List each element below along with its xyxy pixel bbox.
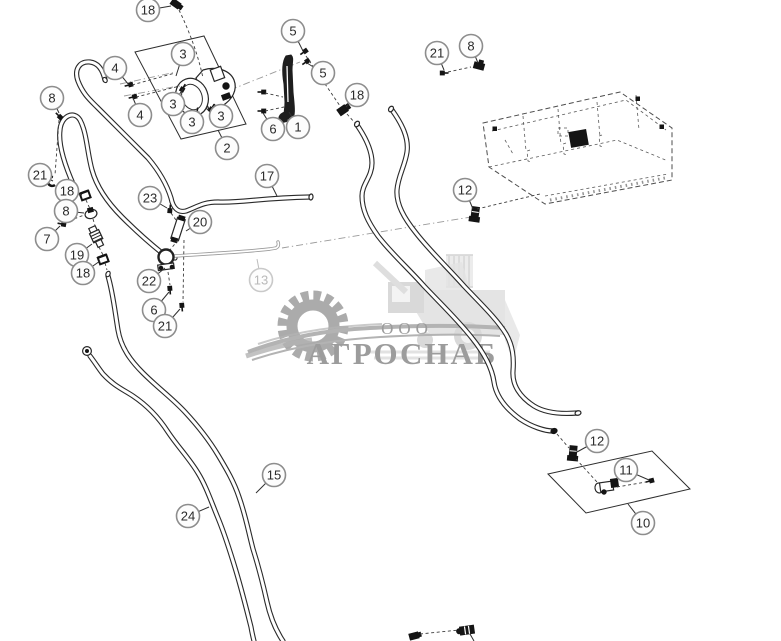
callout-2[interactable]: 2 <box>216 130 239 160</box>
svg-text:3: 3 <box>217 109 224 124</box>
svg-text:5: 5 <box>289 24 296 39</box>
frame-mounted-component <box>569 130 588 148</box>
svg-text:12: 12 <box>458 183 472 198</box>
callout-24[interactable]: 24 <box>177 505 210 528</box>
bracket-1 <box>279 55 294 123</box>
callout-23[interactable]: 23 <box>139 187 168 210</box>
callout-11[interactable]: 11 <box>615 459 650 482</box>
callout-8[interactable]: 8 <box>460 35 483 64</box>
callout-10[interactable]: 10 <box>628 504 655 535</box>
svg-text:20: 20 <box>193 215 207 230</box>
svg-text:4: 4 <box>111 61 118 76</box>
chassis-frame-phantom <box>483 92 672 204</box>
parts-diagram-page: ООО АГРОСНАБ <box>0 0 781 641</box>
fitting-bottom-left <box>409 631 422 640</box>
svg-text:2: 2 <box>223 141 230 156</box>
callout-4[interactable]: 4 <box>129 98 152 127</box>
hose-15 <box>105 271 283 641</box>
svg-text:8: 8 <box>62 204 69 219</box>
clamp-18-a <box>80 191 91 201</box>
callout-20[interactable]: 20 <box>186 211 212 234</box>
callout-18[interactable]: 18 <box>72 261 101 285</box>
callout-18[interactable]: 18 <box>137 0 172 22</box>
fitting-8-left <box>84 207 98 220</box>
clamp-18-b <box>98 255 109 265</box>
callout-13[interactable]: 13 <box>250 259 273 292</box>
bolt-5a <box>299 48 309 57</box>
fitting-8-topright <box>473 59 485 70</box>
assembly-axis-lines <box>120 62 471 248</box>
svg-text:7: 7 <box>43 232 50 247</box>
svg-text:11: 11 <box>619 463 633 478</box>
bolt-6b <box>258 109 267 114</box>
svg-text:18: 18 <box>76 266 90 281</box>
callout-8[interactable]: 8 <box>41 87 64 114</box>
clamp-22 <box>158 250 175 271</box>
svg-text:4: 4 <box>136 108 143 123</box>
svg-text:1: 1 <box>294 120 301 135</box>
svg-text:21: 21 <box>430 46 444 61</box>
callout-21[interactable]: 21 <box>426 42 449 71</box>
bolt-21c <box>179 303 185 312</box>
hose-24 <box>83 347 254 641</box>
bottom-lead-line <box>470 634 474 641</box>
parts-diagram: ООО АГРОСНАБ <box>0 0 781 641</box>
fitting-18-top <box>170 0 183 10</box>
link-plate-20 <box>170 215 186 243</box>
svg-text:21: 21 <box>158 319 172 334</box>
svg-text:3: 3 <box>188 115 195 130</box>
callout-18[interactable]: 18 <box>346 84 369 108</box>
valve-11 <box>594 478 618 494</box>
bolt-5b <box>301 58 311 67</box>
watermark-company-name: АГРОСНАБ <box>307 336 498 371</box>
svg-text:3: 3 <box>169 97 176 112</box>
fitting-bottom-right <box>456 625 474 635</box>
bolt-21a <box>440 71 449 76</box>
svg-text:17: 17 <box>260 169 274 184</box>
svg-text:19: 19 <box>70 248 84 263</box>
svg-text:8: 8 <box>467 39 474 54</box>
callout-15[interactable]: 15 <box>256 464 286 494</box>
sensor-19 <box>87 225 105 248</box>
svg-text:12: 12 <box>590 434 604 449</box>
callout-17[interactable]: 17 <box>256 165 279 197</box>
callout-22[interactable]: 22 <box>138 268 166 293</box>
callout-5[interactable]: 5 <box>307 62 335 85</box>
watermark-logo: ООО АГРОСНАБ <box>246 255 520 371</box>
callout-3[interactable]: 3 <box>172 43 195 77</box>
callout-3[interactable]: 3 <box>181 111 204 134</box>
svg-text:10: 10 <box>636 516 650 531</box>
svg-text:24: 24 <box>181 509 195 524</box>
callout-5[interactable]: 5 <box>282 20 305 52</box>
svg-text:23: 23 <box>143 191 157 206</box>
callout-7[interactable]: 7 <box>36 226 61 251</box>
svg-text:3: 3 <box>179 47 186 62</box>
callout-8[interactable]: 8 <box>55 200 85 223</box>
callout-12[interactable]: 12 <box>577 430 609 453</box>
svg-text:18: 18 <box>141 3 155 18</box>
svg-text:6: 6 <box>269 122 276 137</box>
svg-text:21: 21 <box>33 168 47 183</box>
tube-13 <box>175 242 278 256</box>
callout-3[interactable]: 3 <box>210 105 233 128</box>
svg-text:22: 22 <box>142 274 156 289</box>
svg-text:13: 13 <box>254 273 268 288</box>
callout-12[interactable]: 12 <box>454 179 477 210</box>
svg-text:5: 5 <box>319 66 326 81</box>
svg-text:6: 6 <box>150 303 157 318</box>
svg-text:18: 18 <box>60 184 74 199</box>
callout-layer: 1844333325561182181282118871918232022621… <box>29 0 655 535</box>
svg-text:18: 18 <box>350 88 364 103</box>
svg-text:15: 15 <box>267 468 281 483</box>
bolt-6a <box>258 90 267 95</box>
svg-text:8: 8 <box>48 91 55 106</box>
